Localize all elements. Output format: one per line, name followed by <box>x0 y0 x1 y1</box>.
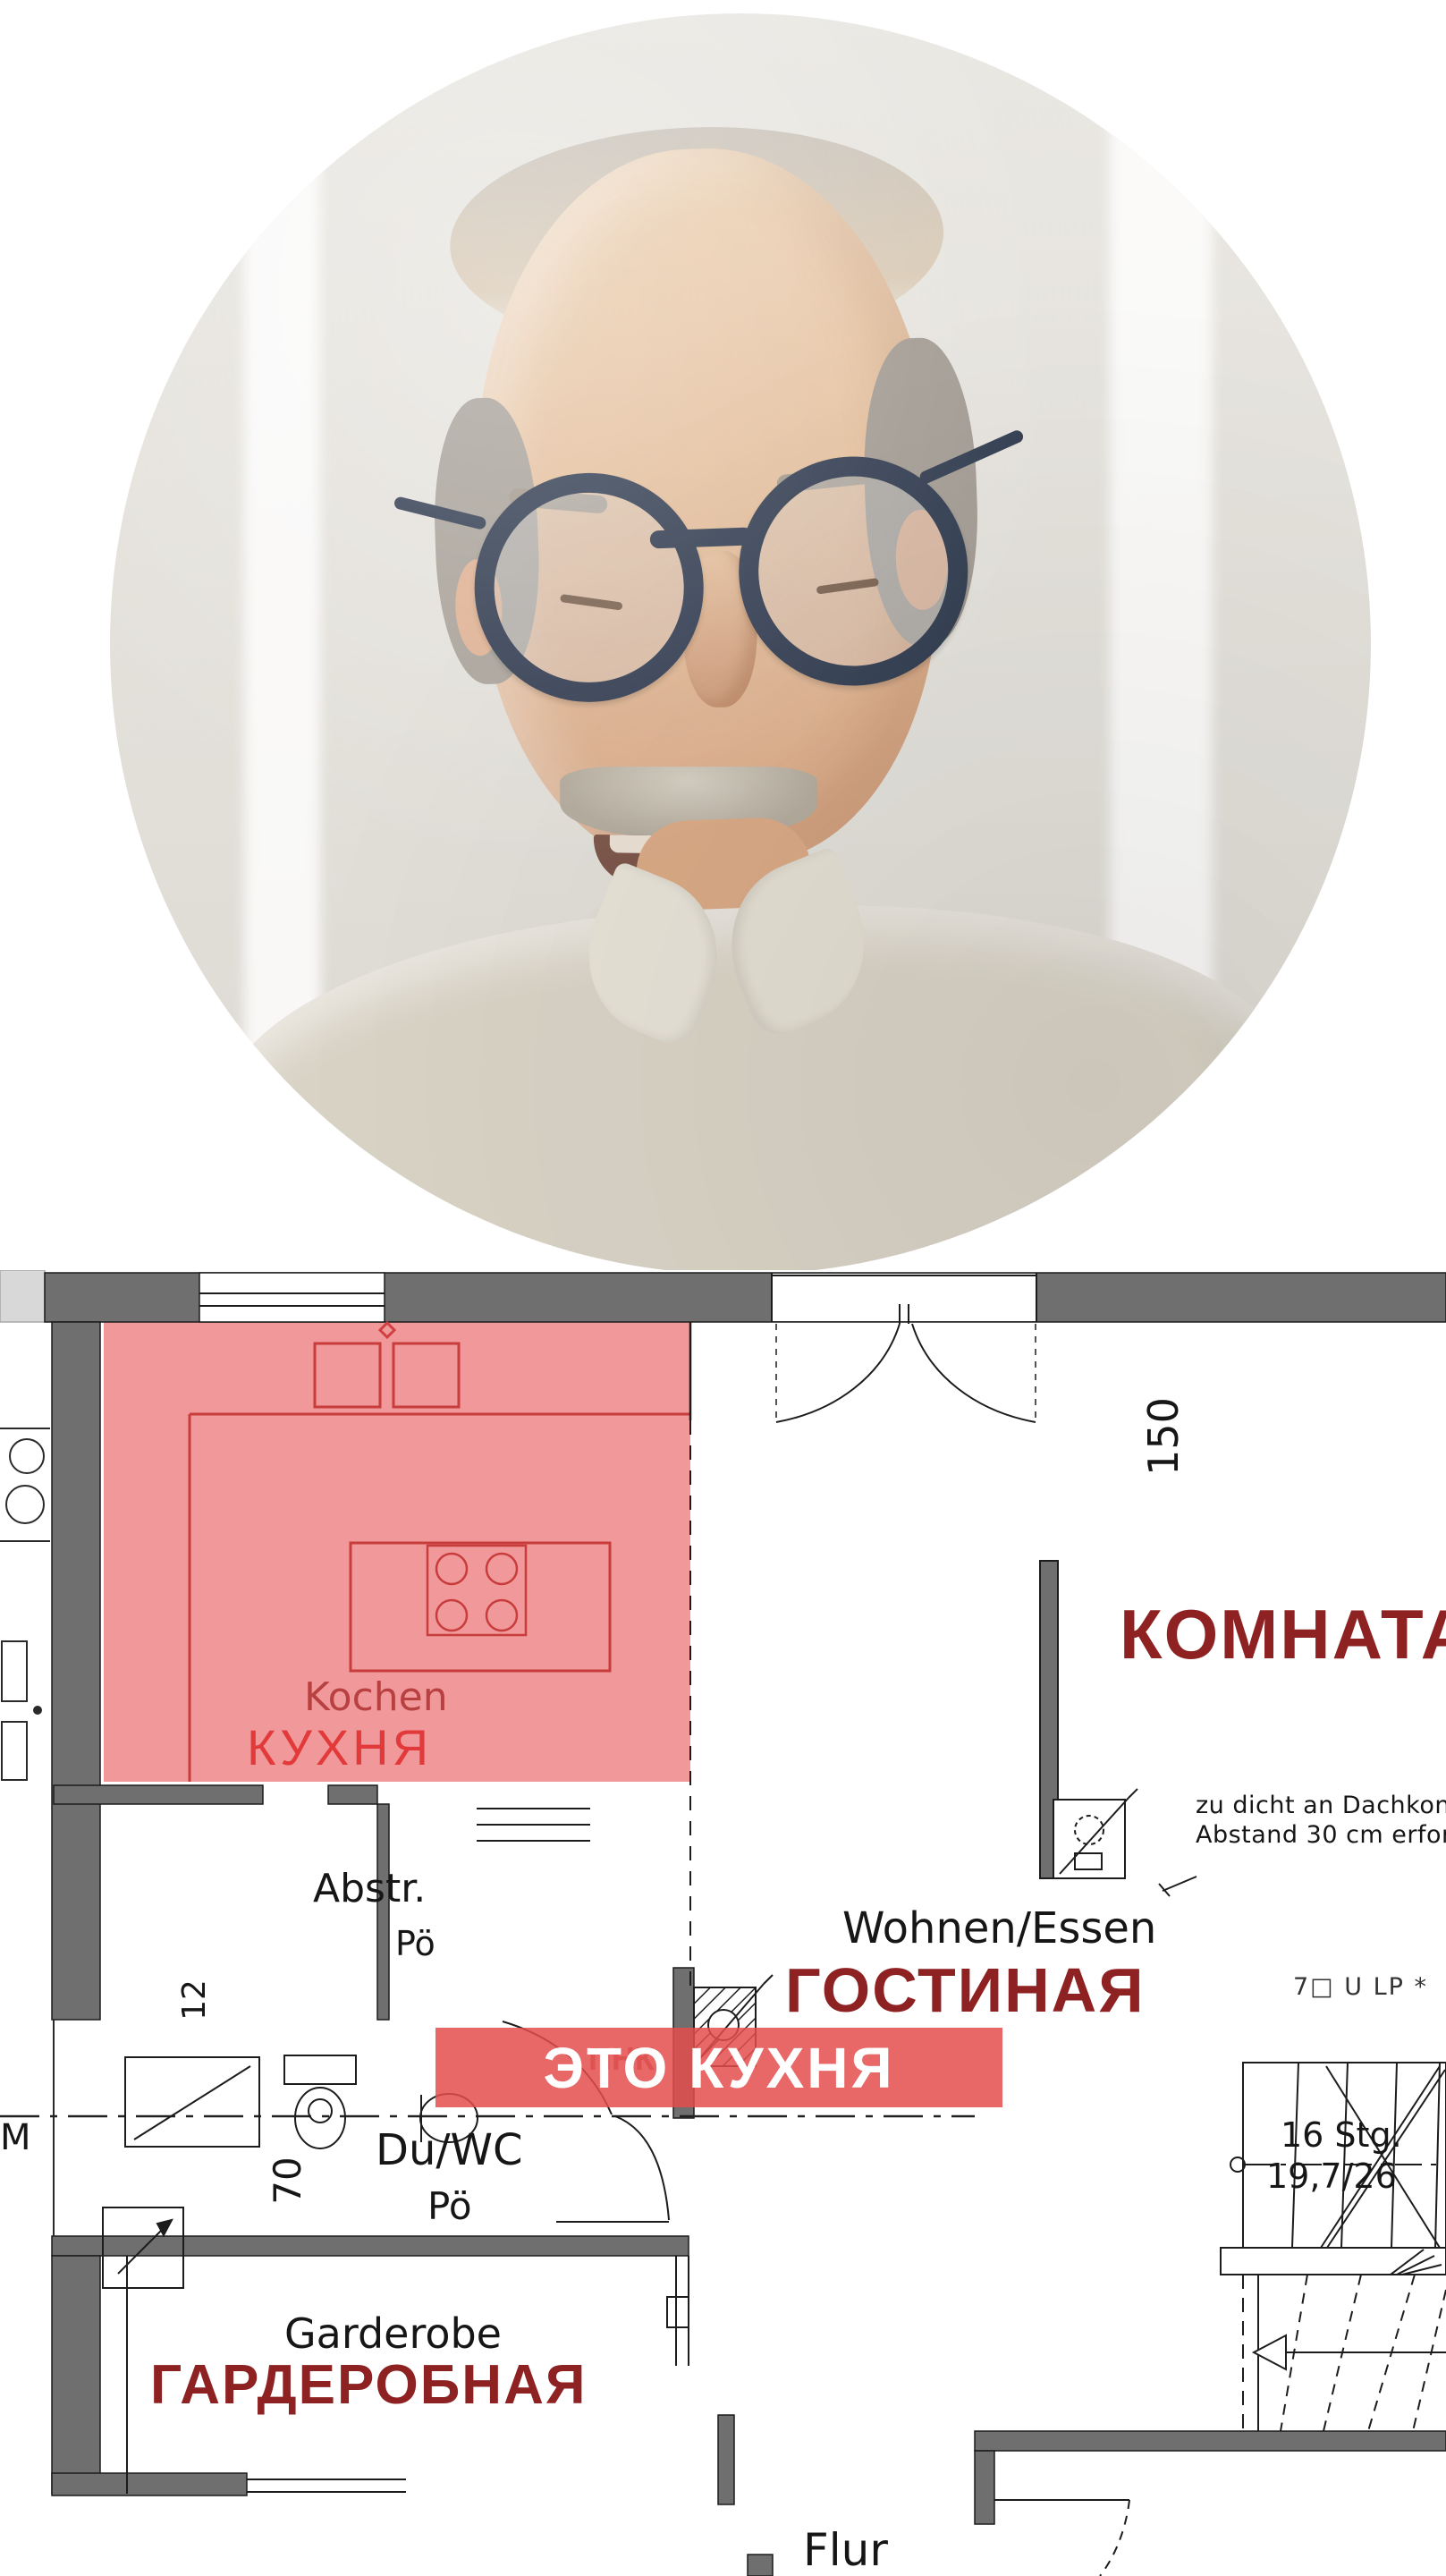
wardrobe-hallway-lines <box>127 2256 1129 2576</box>
label-living-de: Wohnen/Essen <box>842 1907 1156 1950</box>
video-frame: Kochen КУХНЯ КОМНАТА Wohnen/Essen ГОСТИН… <box>0 0 1446 2576</box>
speaker-photo <box>110 13 1371 1275</box>
note-ulp: 7□ U LP * <box>1293 1975 1428 1999</box>
label-living-ru: ГОСТИНАЯ <box>785 1959 1146 2021</box>
label-wardrobe-ru: ГАРДЕРОБНАЯ <box>150 2358 587 2413</box>
dimension-150: 150 <box>1141 1395 1186 1478</box>
label-storage-floor: Pö <box>395 1927 435 1961</box>
label-kitchen-ru: КУХНЯ <box>247 1723 432 1773</box>
label-kitchen-de: Kochen <box>304 1678 448 1717</box>
kitchen-overlay-banner: ЭТО КУХНЯ <box>435 2028 1002 2107</box>
label-hallway-de: Flur <box>803 2528 888 2572</box>
dimension-70: 70 <box>268 2145 308 2216</box>
portrait-section <box>0 0 1446 1270</box>
label-storage-de: Abstr. <box>313 1869 426 1909</box>
note-m: M <box>0 2120 31 2156</box>
note-roof-clearance-line2: Abstand 30 cm erford <box>1196 1823 1446 1847</box>
kitchen-overlay-banner-text: ЭТО КУХНЯ <box>544 2035 895 2101</box>
note-stairs-count: 16 Stg. <box>1281 2118 1402 2152</box>
note-stairs-ratio: 19,7/26 <box>1266 2159 1397 2193</box>
photo-vignette <box>110 13 1371 1275</box>
note-roof-clearance-line1: zu dicht an Dachkonst <box>1196 1793 1446 1818</box>
label-bath-floor: Pö <box>427 2188 472 2225</box>
neighbor-fixtures <box>0 1428 54 2236</box>
label-wardrobe-de: Garderobe <box>284 2313 502 2354</box>
label-bath-de: Du/WC <box>376 2129 523 2172</box>
floor-plan: Kochen КУХНЯ КОМНАТА Wohnen/Essen ГОСТИН… <box>0 1270 1446 2576</box>
dimension-12: 12 <box>177 1964 213 2036</box>
label-room-ru: КОМНАТА <box>1120 1599 1446 1669</box>
